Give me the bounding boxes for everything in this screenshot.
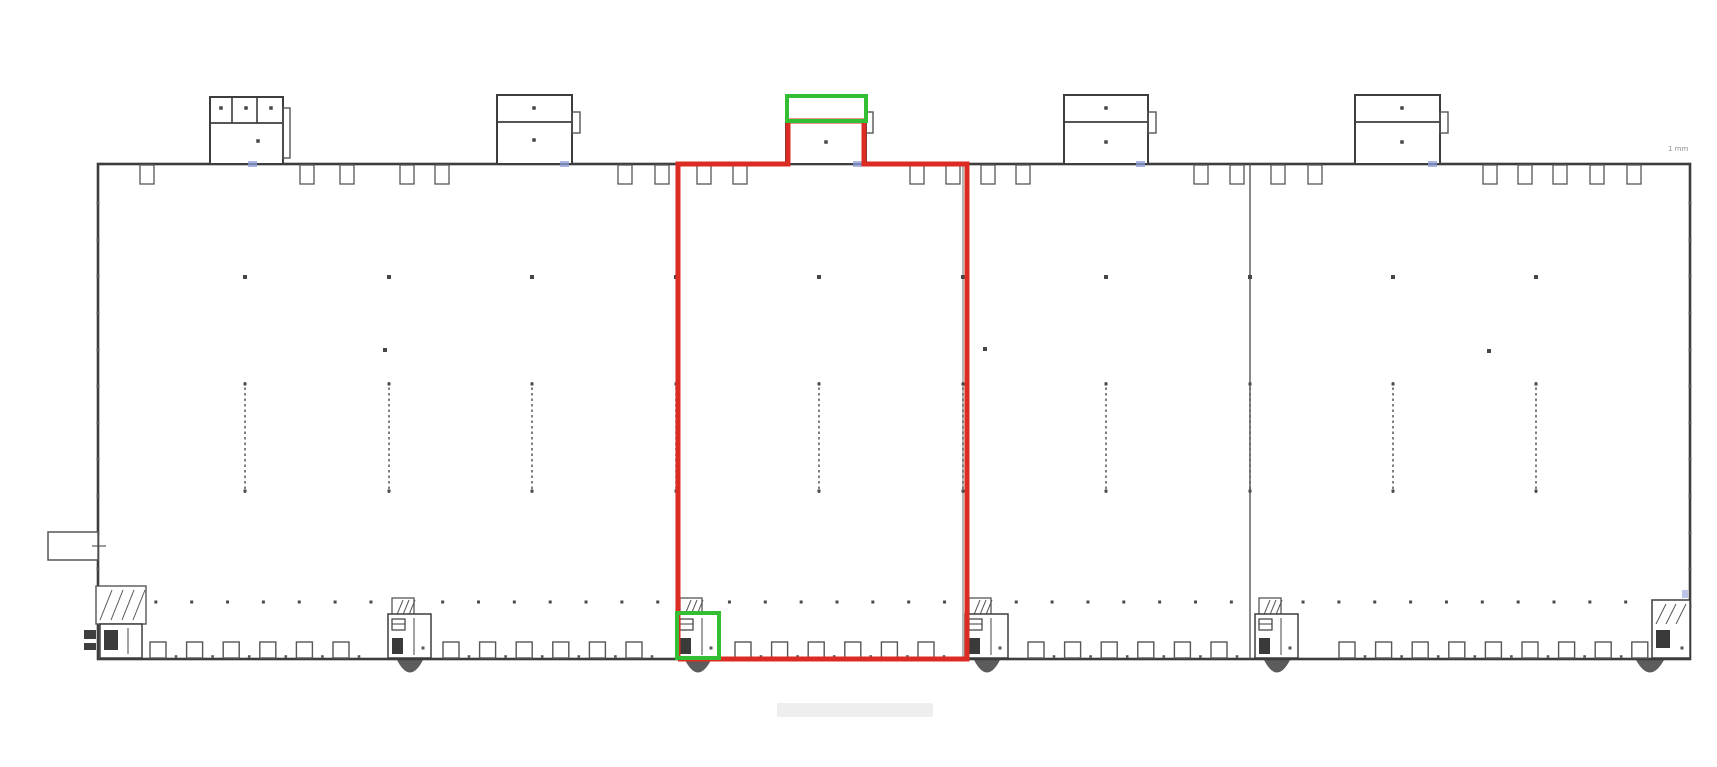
wall-dot — [1364, 655, 1367, 658]
wall-dot — [1437, 655, 1440, 658]
rack-end-dot — [388, 490, 391, 493]
wall-tick — [97, 385, 100, 388]
rack-end-dot — [1105, 490, 1108, 493]
column-dot — [1230, 601, 1233, 604]
skylight-notch — [340, 165, 354, 184]
office-dot — [1400, 140, 1404, 144]
dock-door — [480, 642, 496, 658]
dock-door — [845, 642, 861, 658]
column-dot — [441, 601, 444, 604]
wall-dot — [1053, 655, 1056, 658]
column-dot — [298, 601, 301, 604]
skylight-notch — [1553, 165, 1567, 184]
dock-door — [1339, 642, 1355, 658]
column-dot — [943, 601, 946, 604]
dock-door — [1559, 642, 1575, 658]
rack-end-dot — [1392, 490, 1395, 493]
column-dot — [1086, 601, 1089, 604]
column-dot — [1445, 601, 1448, 604]
wall-tick — [97, 275, 100, 278]
module-column-dot — [1391, 275, 1395, 279]
wall-dot — [504, 655, 507, 658]
corner-glyph-dark — [1656, 630, 1670, 648]
corner-glyph-dark — [104, 630, 118, 650]
skylight-notch — [910, 165, 924, 184]
wall-tick — [1689, 385, 1692, 388]
wall-dot — [614, 655, 617, 658]
skylight-notch — [1271, 165, 1285, 184]
rack-end-dot — [531, 490, 534, 493]
column-dot — [1373, 601, 1376, 604]
dock-door — [1211, 642, 1227, 658]
dock-door — [516, 642, 532, 658]
entrance-fan — [685, 660, 711, 673]
module-column-dot — [530, 275, 534, 279]
dock-door — [918, 642, 934, 658]
office-dot — [1104, 140, 1108, 144]
rack-end-dot — [1392, 383, 1395, 386]
corner-note: 1 mm — [1668, 145, 1688, 153]
roof-office-block — [1064, 95, 1148, 164]
left-canopy — [48, 532, 98, 560]
wall-dot — [285, 655, 288, 658]
column-dot — [1015, 601, 1018, 604]
wall-tick — [97, 422, 100, 425]
wall-tick — [1689, 422, 1692, 425]
column-dot — [1122, 601, 1125, 604]
wall-dot — [1199, 655, 1202, 658]
wall-dot — [175, 655, 178, 658]
skylight-notch — [1308, 165, 1322, 184]
office-dot — [219, 106, 223, 110]
office-dot — [1104, 106, 1108, 110]
module-column-dot — [1248, 275, 1252, 279]
column-dot — [1409, 601, 1412, 604]
wall-dot — [211, 655, 214, 658]
rack-end-dot — [962, 383, 965, 386]
column-dot — [477, 601, 480, 604]
rack-end-dot — [1535, 383, 1538, 386]
office-dot — [824, 140, 828, 144]
column-dot — [1487, 349, 1491, 353]
wall-tick — [1689, 349, 1692, 352]
column-dot — [656, 601, 659, 604]
office-side-bump — [283, 108, 290, 158]
wall-dot — [1547, 655, 1550, 658]
dock-door — [1485, 642, 1501, 658]
dock-door — [553, 642, 569, 658]
wall-dot — [468, 655, 471, 658]
dimension-tick — [248, 161, 257, 167]
skylight-notch — [1627, 165, 1641, 184]
dock-door — [333, 642, 349, 658]
column-dot — [190, 601, 193, 604]
wall-dot — [1236, 655, 1239, 658]
rack-end-dot — [244, 490, 247, 493]
dock-door — [1174, 642, 1190, 658]
dock-door — [881, 642, 897, 658]
column-dot — [1553, 601, 1556, 604]
wall-dot — [1474, 655, 1477, 658]
dock-door — [589, 642, 605, 658]
column-dot — [620, 601, 623, 604]
wall-dot — [1089, 655, 1092, 658]
dock-door — [1449, 642, 1465, 658]
wall-dot — [541, 655, 544, 658]
stairs-glyph-dark — [969, 638, 980, 654]
wall-dot — [578, 655, 581, 658]
column-dot — [513, 601, 516, 604]
dock-door — [150, 642, 166, 658]
module-column-dot — [1104, 275, 1108, 279]
entrance-fan — [1636, 660, 1664, 673]
dock-door — [1028, 642, 1044, 658]
rack-end-dot — [1105, 383, 1108, 386]
wall-dot — [1126, 655, 1129, 658]
wall-tick — [1689, 495, 1692, 498]
skylight-notch — [1590, 165, 1604, 184]
wall-tick — [97, 239, 100, 242]
rack-end-dot — [531, 383, 534, 386]
rack-end-dot — [1535, 490, 1538, 493]
column-dot — [154, 601, 157, 604]
dock-door — [1065, 642, 1081, 658]
module-column-dot — [961, 275, 965, 279]
plan-layers — [48, 95, 1692, 717]
dimension-tick — [1428, 161, 1437, 167]
rack-end-dot — [818, 383, 821, 386]
corner-dot — [1681, 647, 1684, 650]
ghost-scalebar — [777, 703, 933, 717]
office-dot — [256, 139, 260, 143]
wall-tick — [1689, 532, 1692, 535]
dock-door — [260, 642, 276, 658]
module-column-dot — [1534, 275, 1538, 279]
dock-door — [1138, 642, 1154, 658]
rack-end-dot — [962, 490, 965, 493]
wall-dot — [651, 655, 654, 658]
column-dot — [1051, 601, 1054, 604]
office-side-bump — [1148, 112, 1156, 133]
column-dot — [836, 601, 839, 604]
wall-tick — [97, 458, 100, 461]
dimension-tick — [853, 161, 862, 167]
wall-tick — [97, 202, 100, 205]
rack-end-dot — [1249, 383, 1252, 386]
dock-door — [735, 642, 751, 658]
dock-door — [1522, 642, 1538, 658]
column-dot — [1481, 601, 1484, 604]
column-dot — [1517, 601, 1520, 604]
roof-office-block — [786, 95, 866, 164]
column-dot — [1624, 601, 1627, 604]
dock-door — [1412, 642, 1428, 658]
column-dot — [1194, 601, 1197, 604]
wall-tick — [97, 349, 100, 352]
wall-tick — [97, 568, 100, 571]
skylight-notch — [1230, 165, 1244, 184]
dimension-tick — [560, 161, 569, 167]
office-dot — [244, 106, 248, 110]
roof-office-block — [1355, 95, 1440, 164]
skylight-notch — [618, 165, 632, 184]
selected-unit-outline-red[interactable] — [678, 121, 967, 659]
rack-end-dot — [388, 383, 391, 386]
stairs-dot — [999, 647, 1002, 650]
dock-door — [1101, 642, 1117, 658]
module-column-dot — [387, 275, 391, 279]
office-dot — [269, 106, 273, 110]
column-dot — [728, 601, 731, 604]
corner-lobby-box — [1652, 600, 1690, 658]
skylight-notch — [140, 165, 154, 184]
skylight-notch — [435, 165, 449, 184]
stairs-dot — [710, 647, 713, 650]
column-dot — [585, 601, 588, 604]
skylight-notch — [946, 165, 960, 184]
corner-outside-mark — [84, 630, 96, 639]
dock-door — [296, 642, 312, 658]
column-dot — [983, 347, 987, 351]
skylight-notch — [655, 165, 669, 184]
office-dot — [1400, 106, 1404, 110]
floor-plan-svg: 1 mm — [0, 0, 1717, 767]
dock-door — [626, 642, 642, 658]
rack-end-dot — [244, 383, 247, 386]
dock-door — [808, 642, 824, 658]
rack-end-dot — [1249, 490, 1252, 493]
dock-door — [1376, 642, 1392, 658]
dock-door — [223, 642, 239, 658]
wall-dot — [358, 655, 361, 658]
dock-door — [443, 642, 459, 658]
skylight-notch — [697, 165, 711, 184]
wall-tick — [1689, 275, 1692, 278]
column-dot — [226, 601, 229, 604]
wall-tick — [1689, 202, 1692, 205]
column-dot — [764, 601, 767, 604]
column-dot — [369, 601, 372, 604]
office-side-bump — [572, 112, 580, 133]
wall-dot — [248, 655, 251, 658]
column-dot — [262, 601, 265, 604]
skylight-notch — [300, 165, 314, 184]
module-column-dot — [817, 275, 821, 279]
stairs-dot — [422, 647, 425, 650]
skylight-notch — [981, 165, 995, 184]
office-side-bump — [1440, 112, 1448, 133]
stairs-glyph-dark — [680, 638, 691, 654]
dock-door — [772, 642, 788, 658]
building-outline — [98, 164, 1690, 659]
skylight-notch — [733, 165, 747, 184]
wall-tick — [1689, 458, 1692, 461]
entrance-fan — [397, 660, 423, 673]
wall-dot — [1400, 655, 1403, 658]
roof-office-block — [497, 95, 572, 164]
dock-door — [1632, 642, 1648, 658]
rack-end-dot — [818, 490, 821, 493]
skylight-notch — [400, 165, 414, 184]
skylight-notch — [1194, 165, 1208, 184]
corner-outside-mark — [84, 643, 96, 650]
entrance-fan — [974, 660, 1000, 673]
skylight-notch — [1518, 165, 1532, 184]
wall-dot — [1510, 655, 1513, 658]
column-dot — [800, 601, 803, 604]
office-dot — [532, 106, 536, 110]
skylight-notch — [1016, 165, 1030, 184]
wall-tick — [1689, 568, 1692, 571]
wall-dot — [1163, 655, 1166, 658]
column-dot — [1337, 601, 1340, 604]
column-dot — [549, 601, 552, 604]
wall-dot — [1583, 655, 1586, 658]
stairs-glyph-dark — [1259, 638, 1270, 654]
dock-door — [1595, 642, 1611, 658]
column-dot — [1302, 601, 1305, 604]
wall-tick — [1689, 239, 1692, 242]
dock-door — [187, 642, 203, 658]
wall-tick — [97, 495, 100, 498]
wall-dot — [1620, 655, 1623, 658]
stairs-glyph-dark — [392, 638, 403, 654]
column-dot — [383, 348, 387, 352]
wall-tick — [97, 312, 100, 315]
column-dot — [1158, 601, 1161, 604]
office-dot — [532, 138, 536, 142]
wall-dot — [321, 655, 324, 658]
skylight-notch — [1483, 165, 1497, 184]
column-dot — [334, 601, 337, 604]
dimension-tick — [1682, 590, 1688, 598]
column-dot — [871, 601, 874, 604]
wall-tick — [1689, 312, 1692, 315]
dimension-tick — [1136, 161, 1145, 167]
floor-plan-canvas: 1 mm — [0, 0, 1717, 767]
stairs-dot — [1289, 647, 1292, 650]
column-dot — [907, 601, 910, 604]
module-column-dot — [243, 275, 247, 279]
column-dot — [1588, 601, 1591, 604]
entrance-fan — [1264, 660, 1290, 673]
